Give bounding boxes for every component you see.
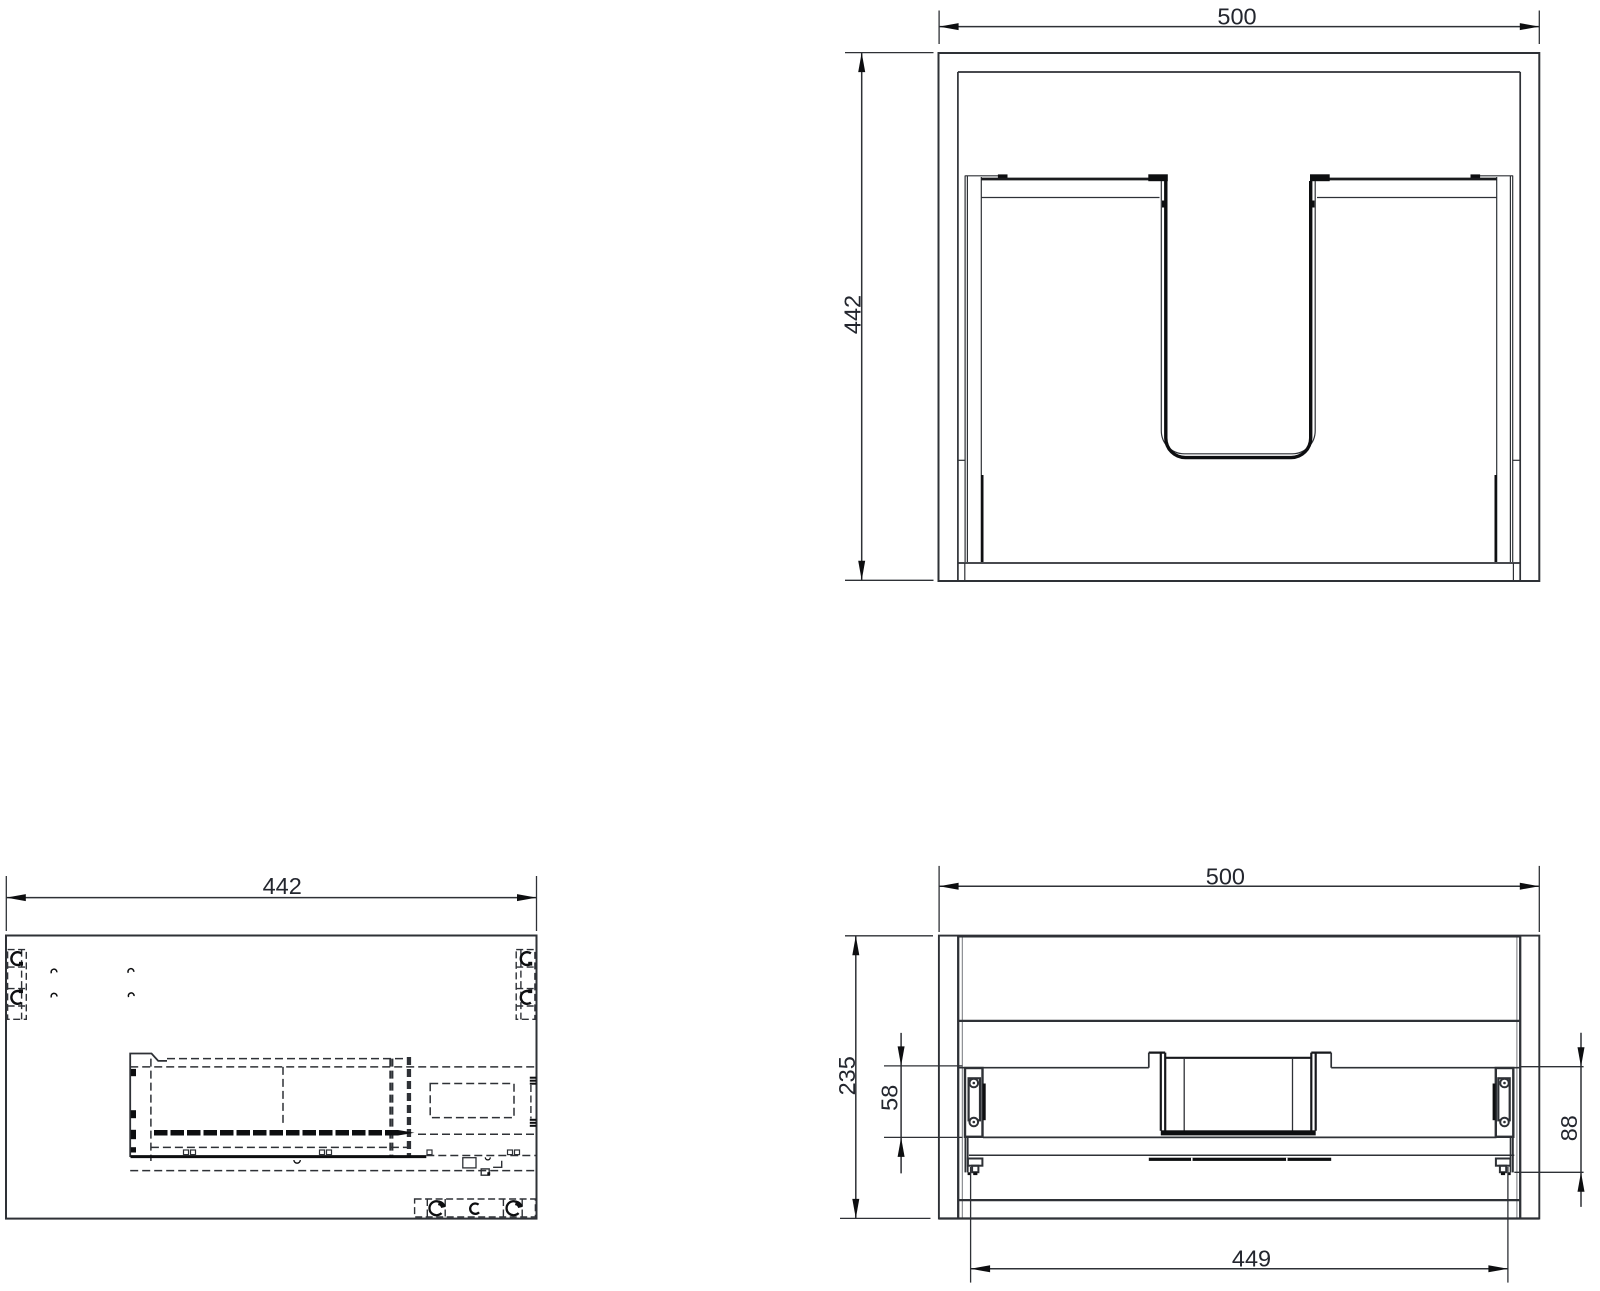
svg-text:442: 442 xyxy=(840,295,866,334)
svg-text:88: 88 xyxy=(1556,1115,1582,1141)
svg-text:500: 500 xyxy=(1217,4,1256,30)
svg-text:449: 449 xyxy=(1232,1246,1271,1272)
svg-text:500: 500 xyxy=(1206,864,1245,890)
svg-text:442: 442 xyxy=(263,873,302,899)
svg-text:235: 235 xyxy=(834,1056,860,1095)
svg-text:58: 58 xyxy=(876,1085,902,1111)
